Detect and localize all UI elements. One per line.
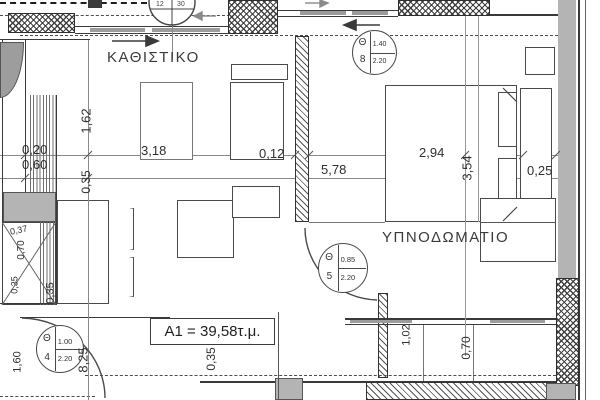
dim-0-60: 0,60 (22, 158, 47, 171)
marker-width: 1.00 (58, 338, 73, 346)
area-label-box: A1 = 39,58τ.μ. (150, 318, 275, 345)
chair (108, 257, 134, 297)
floor-plan: 12 30 Θ 8 1.40 2.20 Θ 5 0.85 2.20 Θ 4 1.… (0, 0, 600, 400)
column-gray (275, 378, 303, 400)
marker-letter: Θ (359, 38, 367, 48)
dim-0-25: 0,25 (527, 164, 552, 177)
coffee-table (232, 186, 280, 218)
small-arrow (194, 12, 216, 20)
dim-8-25: 8,25 (77, 347, 90, 372)
window-marker-left-value: 12 (156, 1, 164, 8)
column-gray (3, 192, 56, 222)
window-frame-segment (152, 28, 220, 32)
column-gray-round (0, 42, 24, 98)
grid-line (465, 16, 466, 356)
wall-gray-segment (490, 320, 545, 324)
dim-0-20: 0,20 (22, 143, 47, 156)
exterior-wall-line (585, 0, 586, 400)
north-arrow (112, 36, 158, 46)
pillow (498, 92, 517, 147)
wall-hatch-block (228, 0, 278, 34)
wall-line (490, 14, 558, 16)
wall-stub-hatch (378, 293, 388, 378)
wall-hatch-block (8, 13, 75, 33)
marker-height: 2.20 (341, 274, 356, 282)
marker-divider (370, 53, 395, 54)
wall-line (278, 312, 279, 400)
dim-0-70-b: 0,70 (17, 240, 27, 259)
column-gray (546, 383, 576, 400)
dining-table (57, 200, 109, 304)
dim-0-35-b: 0,35 (46, 282, 57, 303)
wall-line (309, 222, 385, 223)
chair (108, 208, 134, 250)
dim-0-35-d: 0,35 (11, 276, 20, 294)
dim-3-54: 3,54 (461, 155, 474, 180)
marker-width: 1.40 (373, 41, 387, 48)
wall-line (0, 39, 90, 40)
wall-hatch-block (398, 0, 490, 16)
dim-1-62: 1,62 (80, 108, 93, 133)
dashed-line-bottom (0, 396, 95, 397)
dim-3-18: 3,18 (141, 144, 166, 157)
dim-5-78: 5,78 (321, 163, 346, 176)
marker-width: 0.85 (341, 256, 356, 264)
window-line (75, 33, 228, 34)
wall-line (20, 317, 170, 318)
window-frame-segment (300, 11, 346, 15)
dim-0-35-a: 0,35 (80, 170, 92, 193)
wall-hatch-block (556, 278, 579, 386)
window-marker-right-value: 30 (177, 1, 185, 8)
armchair (177, 200, 234, 258)
dim-0-70: 0,70 (460, 336, 472, 359)
partition-wall-hatch (295, 36, 309, 222)
dim-1-02: 1,02 (402, 324, 413, 345)
bedroom-label: ΥΠΝΟΔΩΜΑΤΙΟ (382, 230, 509, 245)
marker-index: 4 (44, 353, 50, 363)
property-dashed-line (0, 2, 147, 4)
marker-height: 2.20 (58, 355, 73, 363)
sofa-back (231, 64, 288, 80)
marker-letter: Θ (43, 334, 51, 344)
wall-hatch-band (366, 382, 550, 400)
door-marker-5: Θ 5 0.85 2.20 (318, 243, 368, 293)
window-line (278, 16, 398, 17)
dim-2-94: 2,94 (419, 146, 444, 159)
wardrobe-divider (480, 222, 556, 223)
area-label: A1 = 39,58τ.μ. (165, 323, 261, 340)
small-arrow (305, 0, 328, 7)
dim-0-35-c: 0,35 (205, 347, 217, 370)
marker-letter: Θ (325, 253, 333, 263)
shelf (525, 47, 555, 75)
dim-1-60: 1,60 (13, 351, 24, 372)
wall-gray-segment (350, 320, 412, 324)
window-frame-segment (352, 11, 388, 15)
marker-index: 8 (360, 55, 366, 65)
window-frame-segment (90, 28, 145, 32)
marker-divider (338, 268, 365, 269)
grid-line (478, 16, 479, 222)
marker-index: 5 (327, 272, 333, 282)
dim-0-12: 0,12 (259, 147, 284, 160)
living-room-label: ΚΑΘΙΣΤΙΚΟ (107, 50, 200, 65)
wall-line (345, 324, 556, 325)
dashed-line-bottom (85, 375, 556, 376)
wall-stub (88, 0, 102, 8)
door-marker-8: Θ 8 1.40 2.20 (352, 30, 397, 75)
entry-arrow (344, 20, 380, 30)
marker-height: 2.20 (373, 58, 387, 65)
grid-line (88, 40, 89, 400)
